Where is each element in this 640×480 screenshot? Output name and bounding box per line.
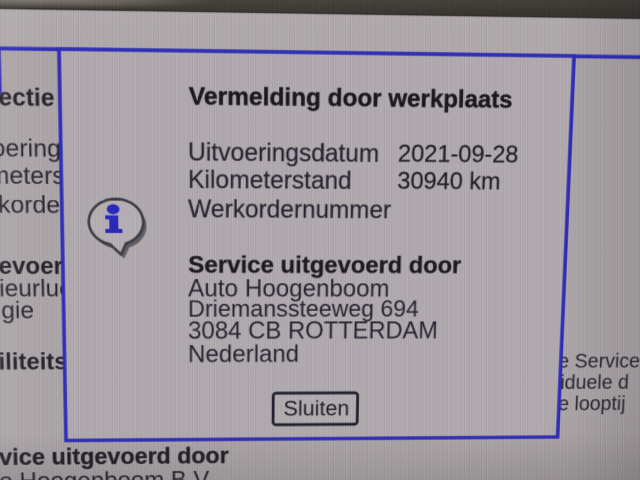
svg-text:ectie: ectie [0,84,55,112]
svg-text:Uitvoeringsdatum: Uitvoeringsdatum [188,137,380,167]
svg-text:Werkordernummer: Werkordernummer [188,194,391,224]
svg-text:iliteits: iliteits [0,349,68,375]
svg-text:o Hoogenboom B.V.: o Hoogenboom B.V. [0,466,214,480]
svg-text:2021-09-28: 2021-09-28 [398,140,519,168]
svg-text:gie: gie [1,298,34,324]
svg-text:oering: oering [0,135,61,163]
svg-text:Nederland: Nederland [188,340,299,368]
svg-text:meters: meters [0,162,65,190]
svg-text:iduele d: iduele d [560,371,630,394]
svg-text:korder: korder [0,191,69,218]
svg-text:Sluiten: Sluiten [283,396,349,421]
svg-text:e Service: e Service [558,349,640,372]
svg-text:Vermelding door werkplaats: Vermelding door werkplaats [189,83,513,114]
svg-text:30940 km: 30940 km [397,168,501,195]
svg-text:e looptij: e looptij [558,392,626,415]
svg-text:Kilometerstand: Kilometerstand [188,165,352,195]
